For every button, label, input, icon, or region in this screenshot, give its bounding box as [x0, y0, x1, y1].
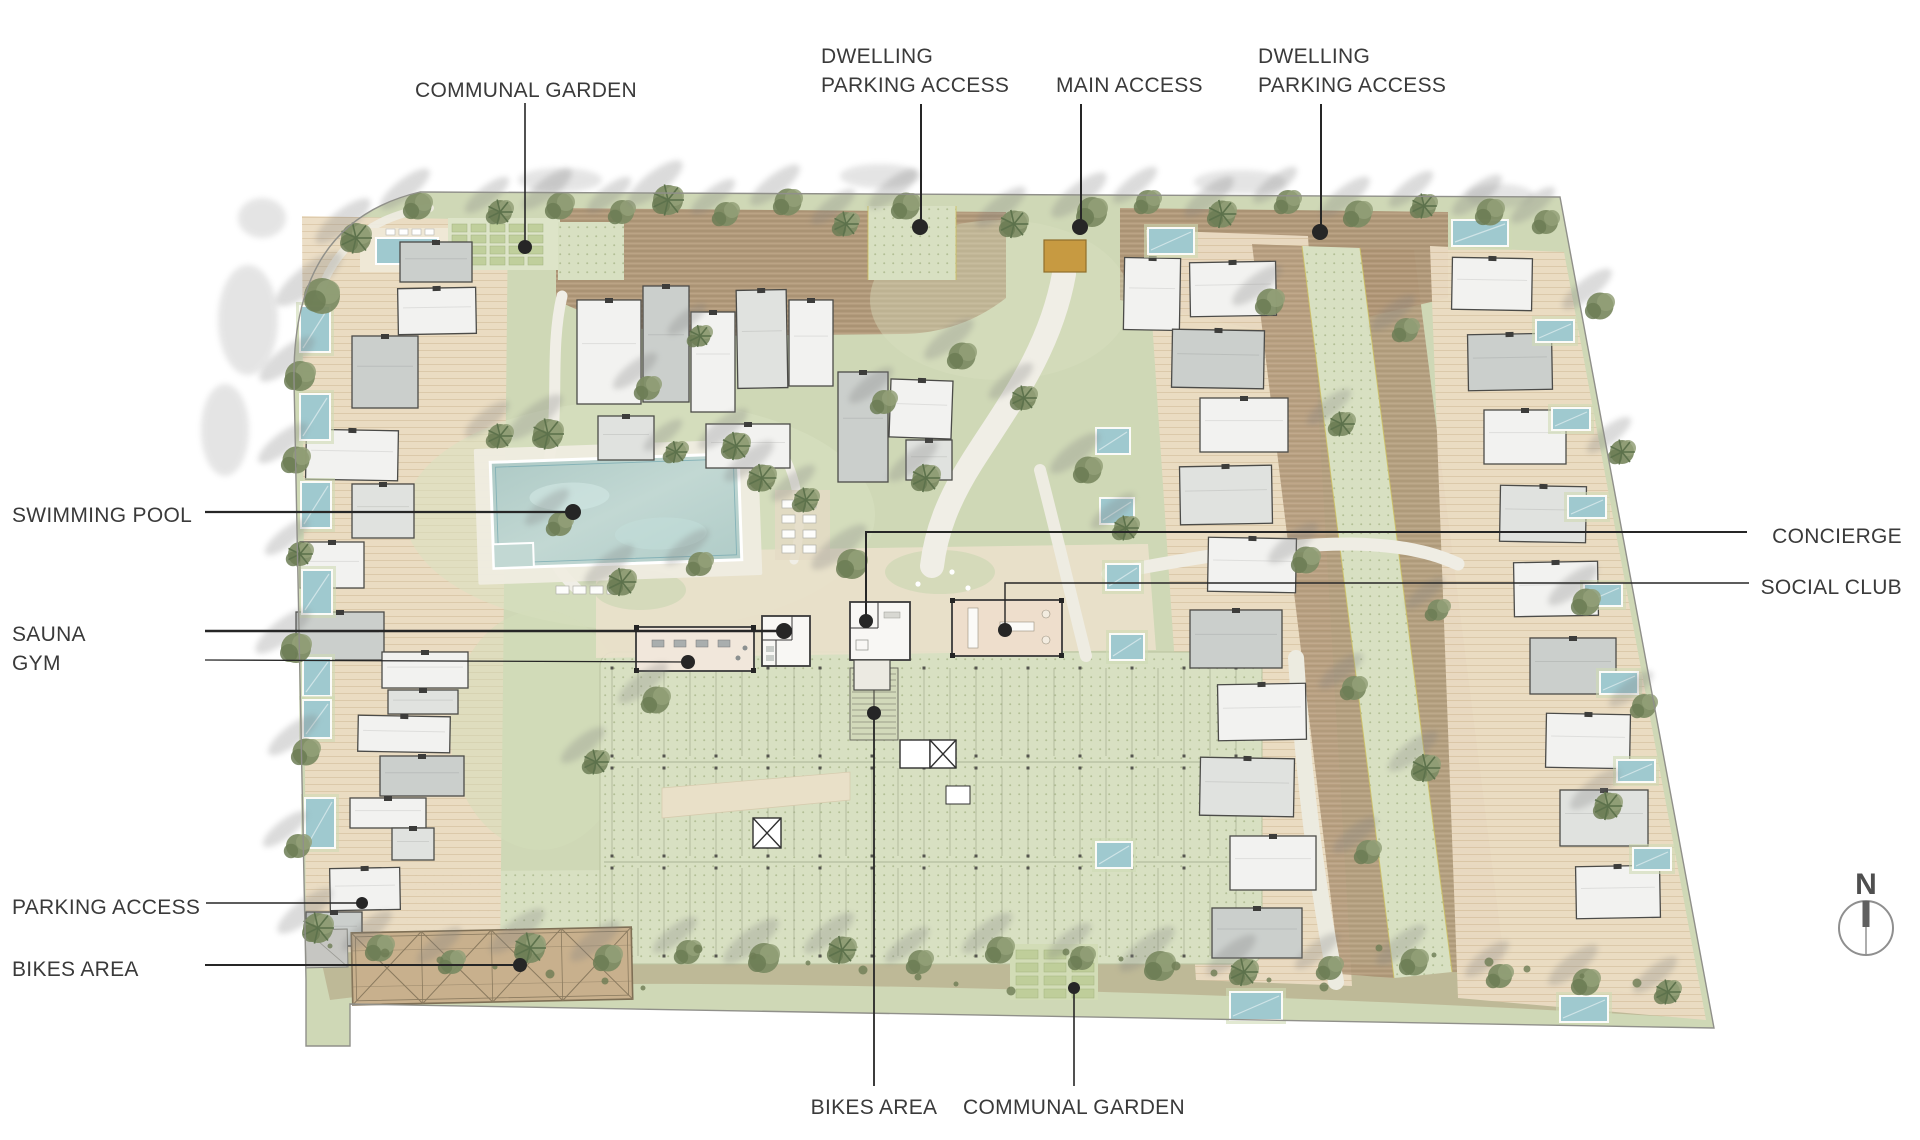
- social-club-building: [950, 598, 1064, 658]
- main-access-gate: [1044, 240, 1086, 272]
- courtyard-paving: [558, 222, 624, 280]
- site-plan-illustration: [0, 0, 1920, 1140]
- sauna-building: [762, 616, 810, 666]
- masterplan-page: N COMMUNAL GARDEN DWELLINGPARKING ACCESS…: [0, 0, 1920, 1140]
